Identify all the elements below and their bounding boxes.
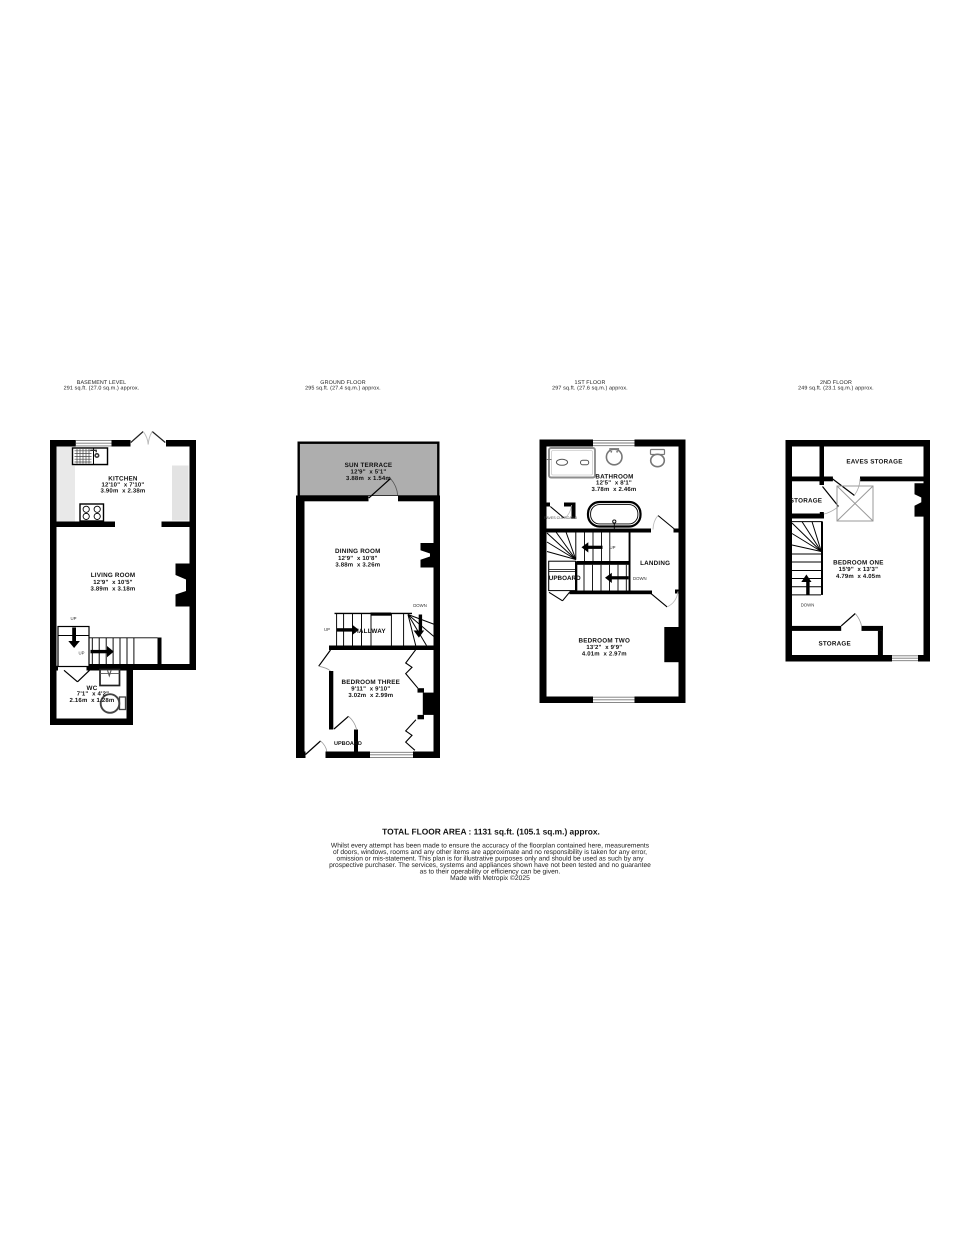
svg-text:DOWN: DOWN [633, 576, 647, 581]
svg-text:STORAGE: STORAGE [818, 641, 850, 648]
svg-text:STORAGE: STORAGE [790, 498, 822, 505]
svg-text:SUN TERRACE: SUN TERRACE [345, 462, 393, 469]
svg-text:UP: UP [610, 545, 616, 550]
svg-text:295 sq.ft. (27.4 sq.m.) approx: 295 sq.ft. (27.4 sq.m.) approx. [305, 385, 381, 391]
svg-text:12'5" x 8'1": 12'5" x 8'1" [596, 479, 632, 486]
svg-text:3.89m x 3.18m: 3.89m x 3.18m [91, 586, 136, 593]
svg-text:BEDROOM ONE: BEDROOM ONE [833, 559, 883, 566]
svg-text:EAVES STORAGE: EAVES STORAGE [846, 459, 902, 466]
svg-text:2.16m x 1.28m: 2.16m x 1.28m [70, 697, 115, 704]
svg-text:UPBOARD: UPBOARD [549, 575, 581, 582]
svg-text:HALLWAY: HALLWAY [354, 628, 386, 635]
svg-text:DOWN: DOWN [801, 603, 815, 608]
svg-text:297 sq.ft. (27.6 sq.m.) approx: 297 sq.ft. (27.6 sq.m.) approx. [552, 385, 628, 391]
svg-text:249 sq.ft. (23.1 sq.m.) approx: 249 sq.ft. (23.1 sq.m.) approx. [798, 385, 874, 391]
svg-text:3.02m x 2.99m: 3.02m x 2.99m [348, 692, 393, 699]
svg-text:TOTAL FLOOR AREA : 1131 sq.ft.: TOTAL FLOOR AREA : 1131 sq.ft. (105.1 sq… [382, 827, 600, 837]
svg-text:DINING ROOM: DINING ROOM [335, 548, 381, 555]
svg-text:12'9" x 10'5": 12'9" x 10'5" [93, 579, 132, 586]
svg-text:3.78m x 2.46m: 3.78m x 2.46m [592, 486, 637, 493]
svg-text:9'11" x 9'10": 9'11" x 9'10" [351, 685, 390, 692]
svg-text:UP: UP [71, 616, 77, 621]
svg-text:3.88m x 1.54m: 3.88m x 1.54m [346, 475, 391, 482]
svg-text:DOWN: DOWN [413, 603, 427, 608]
svg-text:EAVES CUPBOARD: EAVES CUPBOARD [544, 516, 577, 520]
svg-text:12'9" x 5'1": 12'9" x 5'1" [351, 469, 387, 476]
svg-text:BATHROOM: BATHROOM [595, 473, 633, 480]
svg-text:UPBOARD: UPBOARD [334, 741, 362, 747]
svg-text:13'2" x 9'9": 13'2" x 9'9" [586, 644, 622, 651]
svg-text:Made with Metropix ©2025: Made with Metropix ©2025 [450, 875, 530, 882]
svg-text:BEDROOM TWO: BEDROOM TWO [579, 637, 631, 644]
svg-text:LIVING ROOM: LIVING ROOM [91, 572, 136, 579]
svg-text:LANDING: LANDING [640, 560, 670, 567]
svg-text:KITCHEN: KITCHEN [108, 476, 138, 483]
svg-text:15'9" x 13'3": 15'9" x 13'3" [839, 566, 878, 573]
svg-text:3.90m x 2.38m: 3.90m x 2.38m [101, 487, 146, 494]
svg-text:3.88m x 3.26m: 3.88m x 3.26m [335, 562, 380, 569]
svg-text:BEDROOM THREE: BEDROOM THREE [342, 679, 401, 686]
svg-text:4.79m x 4.05m: 4.79m x 4.05m [836, 573, 881, 580]
svg-text:UP: UP [79, 651, 85, 656]
svg-text:291 sq.ft. (27.0 sq.m.) approx: 291 sq.ft. (27.0 sq.m.) approx. [64, 385, 140, 391]
svg-text:7'1" x 4'2": 7'1" x 4'2" [77, 690, 109, 697]
svg-text:4.01m x 2.97m: 4.01m x 2.97m [582, 650, 627, 657]
svg-text:12'9" x 10'8": 12'9" x 10'8" [338, 555, 377, 562]
svg-text:UP: UP [324, 627, 330, 632]
